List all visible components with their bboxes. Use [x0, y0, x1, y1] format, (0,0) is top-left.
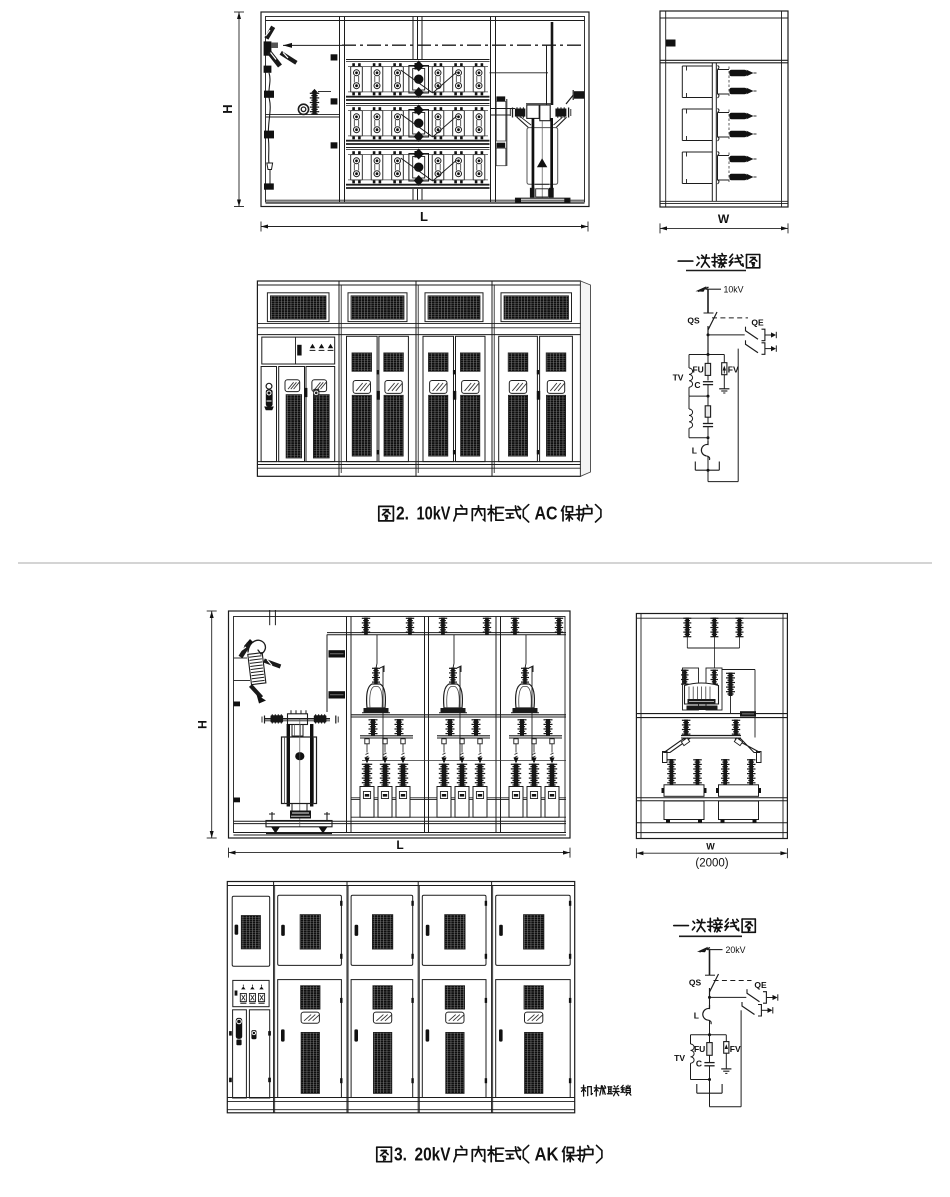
svg-text:10kV: 10kV: [724, 285, 744, 295]
svg-text:L: L: [694, 1011, 699, 1021]
svg-text:H: H: [196, 720, 210, 729]
svg-text:AK: AK: [535, 1144, 559, 1164]
svg-text:2.: 2.: [396, 504, 409, 524]
svg-text:L: L: [420, 209, 428, 224]
svg-text:AC: AC: [535, 504, 558, 524]
svg-text:20kV: 20kV: [726, 945, 746, 955]
svg-text:H: H: [220, 104, 235, 113]
svg-text:QE: QE: [754, 980, 767, 990]
svg-text:L: L: [396, 838, 403, 852]
svg-text:3.: 3.: [394, 1144, 407, 1164]
svg-text:20kV: 20kV: [415, 1144, 451, 1164]
svg-text:W: W: [706, 842, 715, 852]
svg-text:QS: QS: [687, 316, 700, 326]
svg-text:QS: QS: [689, 978, 702, 988]
svg-text:L: L: [692, 446, 697, 456]
svg-text:10kV: 10kV: [417, 504, 451, 524]
svg-text:TV: TV: [673, 373, 684, 383]
svg-text:W: W: [718, 212, 730, 226]
svg-text:QE: QE: [751, 318, 764, 328]
svg-text:(2000): (2000): [695, 858, 728, 870]
svg-text:C: C: [696, 1059, 702, 1069]
svg-text:FU: FU: [694, 1044, 705, 1054]
svg-text:FV: FV: [728, 365, 739, 375]
svg-text:TV: TV: [674, 1053, 685, 1063]
svg-text:FV: FV: [730, 1044, 741, 1054]
svg-text:C: C: [694, 380, 700, 390]
svg-text:FU: FU: [692, 365, 703, 375]
